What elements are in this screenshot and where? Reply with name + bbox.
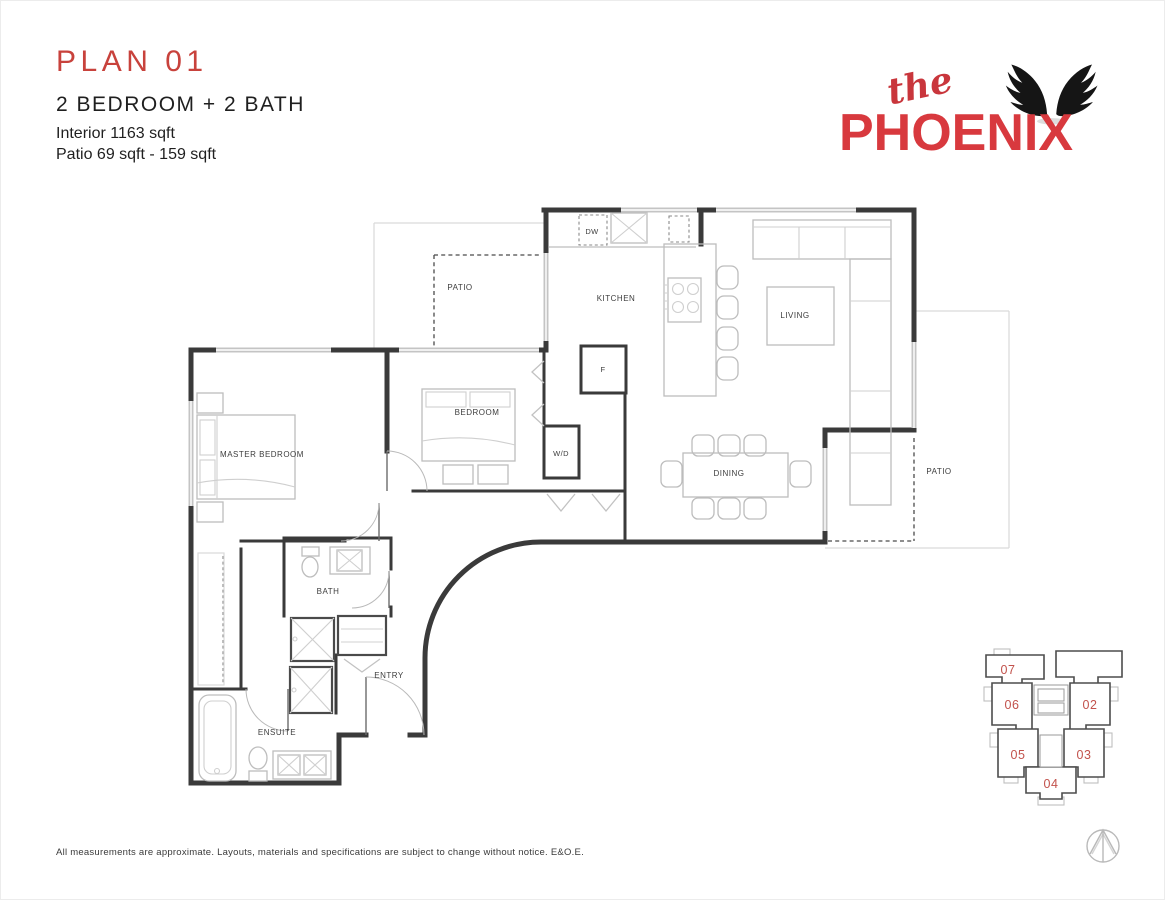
- kitchen-sink: [611, 213, 647, 243]
- room-label-entry: ENTRY: [374, 671, 404, 680]
- bench: [443, 465, 473, 484]
- bench: [478, 465, 508, 484]
- windows: [191, 210, 914, 531]
- kitchen-fixtures: [549, 213, 738, 396]
- keyplan-core: [1034, 685, 1068, 767]
- sofa: [753, 220, 891, 505]
- nightstand: [197, 393, 223, 413]
- room-label-washer-dryer: W/D: [553, 449, 569, 458]
- bath-fixtures: [291, 547, 370, 661]
- room-label-patio-right: PATIO: [926, 467, 951, 476]
- bed: [422, 389, 515, 461]
- entry-closet: [338, 616, 386, 655]
- room-label-dishwasher: DW: [585, 227, 599, 236]
- keyplan-number-04: 04: [1044, 777, 1059, 791]
- room-label-bedroom: BEDROOM: [455, 408, 500, 417]
- room-label-dining: DINING: [714, 469, 745, 478]
- bedroom-furniture: [422, 389, 515, 484]
- island-stools: [717, 266, 738, 380]
- closets: [198, 361, 620, 685]
- ensuite-shower: [290, 667, 332, 713]
- entry-door: [366, 677, 424, 735]
- bedroom-door: [387, 451, 427, 491]
- master-door: [341, 503, 379, 541]
- north-arrow-compass-icon: [1087, 830, 1119, 862]
- keyplan-number-03: 03: [1077, 748, 1092, 762]
- keyplan-number-05: 05: [1011, 748, 1026, 762]
- keyplan-number-02: 02: [1083, 698, 1098, 712]
- room-label-kitchen: KITCHEN: [597, 294, 636, 303]
- room-label-ensuite: ENSUITE: [258, 728, 296, 737]
- toilet-tank: [249, 771, 267, 781]
- keyplan-number-06: 06: [1005, 698, 1020, 712]
- bath-shower: [291, 618, 334, 661]
- room-label-living: LIVING: [780, 311, 809, 320]
- hall-closet-doors: [547, 494, 620, 511]
- ensuite-door: [246, 689, 288, 731]
- floorplan-drawing: PATIO DW KITCHEN LIVING F BEDROOM MASTER…: [1, 1, 1165, 900]
- keyplan: 07 01 06 02 05 03 04: [984, 649, 1122, 805]
- living-furniture: [753, 220, 891, 505]
- exterior-walls: [191, 210, 914, 783]
- room-label-master-bedroom: MASTER BEDROOM: [220, 450, 304, 459]
- kitchen-island: [664, 244, 716, 396]
- room-label-fridge: F: [601, 365, 606, 374]
- toilet: [302, 557, 318, 577]
- bedroom-closet-doors: [532, 361, 544, 426]
- bath-door: [352, 571, 389, 608]
- keyplan-number-01: 01: [1082, 660, 1097, 674]
- toilet: [249, 747, 267, 769]
- keyplan-number-07: 07: [1001, 663, 1016, 677]
- room-label-bath: BATH: [317, 587, 340, 596]
- floorplan-page: PLAN 01 2 BEDROOM + 2 BATH Interior 1163…: [0, 0, 1165, 900]
- toilet-tank: [302, 547, 319, 556]
- room-label-patio-upper: PATIO: [447, 283, 472, 292]
- disclaimer: All measurements are approximate. Layout…: [56, 847, 584, 858]
- nightstand: [197, 502, 223, 522]
